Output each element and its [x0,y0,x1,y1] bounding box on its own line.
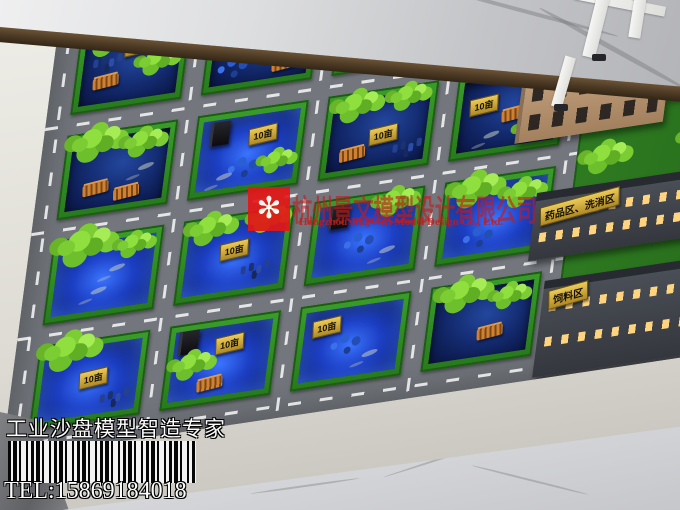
waterwheel [196,375,222,393]
fish-pond-plot: 10亩 [290,291,412,392]
crop-cluster [71,137,89,154]
fish-pond-plot [420,271,542,372]
aerator [237,156,247,167]
area-sign: 10亩 [368,123,398,147]
fish-pond-plot: 10亩 [187,100,309,201]
crop-cluster [390,92,403,104]
fish [138,160,154,171]
phone-number: TEL:15869184018 [4,478,187,505]
fish [216,171,232,182]
worker-figures [240,266,246,275]
aerator [340,333,350,344]
area-sign: 10亩 [219,238,249,262]
fish [379,244,395,255]
crop-cluster [260,156,272,167]
waterwheel [82,180,108,198]
slogan-text: 工业沙盘模型智造专家 [6,413,226,443]
waterwheel [92,73,118,91]
waterwheel [476,323,502,341]
worker-figures [99,394,105,403]
equipment-shed [177,329,200,356]
fish [361,347,377,358]
fish-pond-plot: 10亩 [317,80,439,181]
fish-pond-plot: 10亩 [159,310,281,411]
flower-asterisk-icon: ✻ [256,194,281,224]
stool [560,0,680,125]
fish [483,129,499,140]
waterwheel [339,146,365,164]
watermark-company-name-en: Hangzhou JingWen Model Design Co., Ltd. [299,216,503,228]
fish [90,285,106,296]
worker-figures [392,144,398,153]
crop-cluster [335,101,350,115]
waterwheel [113,183,139,201]
fish-pond-plot [43,224,165,325]
crop-cluster [124,137,138,150]
area-sign: 10亩 [469,93,499,117]
crop-cluster [583,151,598,165]
crop-cluster [138,56,151,68]
feed-building [532,254,680,378]
crop-cluster [172,360,186,373]
barcode [8,441,196,483]
area-sign: 10亩 [215,332,245,356]
crop-cluster [439,288,456,304]
crop-cluster [117,240,129,252]
photo-industrial-sand-table-model: 30亩 30亩 尾水处理区 [0,0,680,510]
worker-figures [93,59,99,68]
aerator [353,232,363,243]
crop-cluster [492,291,504,303]
area-sign: 10亩 [312,315,342,339]
area-sign: 10亩 [248,122,278,146]
building-windows [544,313,680,347]
area-sign: 10亩 [78,366,108,390]
fish-pond-plot [56,119,178,220]
crop-cluster [189,224,204,238]
company-logo: ✻ [248,187,290,231]
crop-cluster [57,239,76,257]
equipment-shed [209,120,232,147]
fish [109,262,125,273]
crop-cluster [43,345,62,362]
